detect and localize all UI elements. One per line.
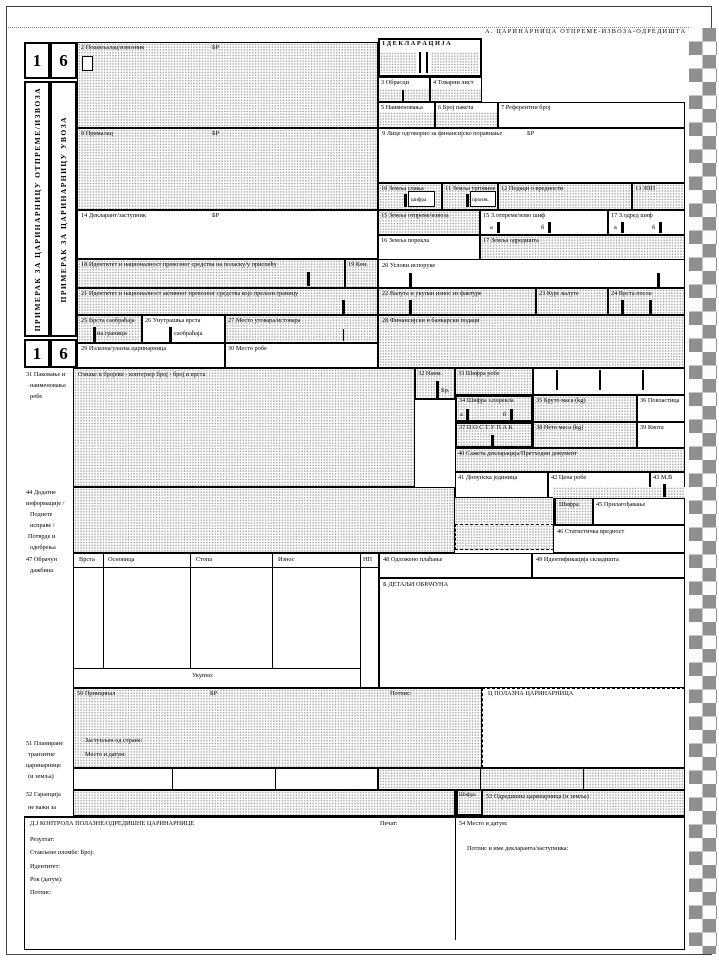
- box-20-label: 20 Услови испоруке: [382, 262, 435, 269]
- box-51-transit-cells-left: [73, 768, 378, 790]
- box-50-represented-label: Заступљен од стране:: [85, 737, 142, 744]
- transit-cell-divider: [480, 768, 481, 790]
- box-51-transit-cells-right: [378, 768, 685, 790]
- box-2-id-square: [82, 56, 93, 71]
- box-44-label-line2: информације /: [26, 500, 64, 507]
- box-3-label: 3 Обрасци: [381, 79, 409, 86]
- box-49-label: 49 Идентификација складишта: [536, 556, 619, 563]
- box-4-label: 4 Товарни лист: [433, 79, 473, 86]
- box-13-label: 13 ЗПП: [635, 185, 655, 192]
- box-41-label: 41 Допунска јединица: [458, 474, 517, 481]
- copy-1-vertical-label: ПРИМЕРАК ЗА ЦАРИНАРНИЦУ ОТПРЕМЕ/ИЗВОЗА: [24, 81, 50, 337]
- box-47-col-rate: Стопа: [196, 556, 212, 563]
- box-25-label: 25 Врста саобраћаја: [81, 317, 135, 324]
- box-d-identity-label: Идентитет:: [30, 863, 60, 870]
- table-column-line: [272, 553, 273, 668]
- field-tick: [621, 300, 624, 314]
- box-44-label-line3: Поднете: [30, 511, 52, 518]
- box-8-label: 8 Прималац: [81, 130, 113, 137]
- field-tick: [497, 222, 500, 233]
- box-25-sublabel: на граници: [97, 330, 127, 337]
- box-37-label: 37 П О С Т У П А К: [459, 424, 513, 431]
- box-14-label: 14 Декларант/заступник: [81, 212, 146, 219]
- box-24-label: 24 Врста посла: [611, 290, 652, 297]
- box-23-label: 23 Курс валуте: [539, 290, 579, 297]
- box-52-guarantee: [73, 790, 455, 816]
- office-of-dispatch-header: А. ЦАРИНАРНИЦА ОТПРЕМЕ-ИЗВОЗА-ОДРЕДИШТА: [485, 28, 686, 35]
- box-18-label: 18 Идентитет и националност превозног ср…: [81, 261, 277, 268]
- box-35-label: 35 Бруто маса (kg): [536, 397, 586, 404]
- box-51-label-line1: 51 Планиране: [26, 740, 63, 747]
- field-tick: [402, 90, 404, 101]
- box-d-signature-label: Потпис:: [30, 889, 52, 896]
- box-22-label: 22 Валута и укупан износ из фактуре: [382, 290, 482, 297]
- box-b-accounting-details: [379, 578, 685, 688]
- box-7-label: 7 Референтни број: [501, 104, 551, 111]
- box-26-sublabel: саобраћаја: [174, 330, 202, 337]
- field-tick: [659, 222, 662, 233]
- box-44-extension: [455, 498, 553, 524]
- box-d-title: Д.Ј КОНТРОЛА ПОЛАЗНЕ/ОДРЕДИШНЕ ЦАРИНАРНИ…: [30, 820, 194, 827]
- field-tick: [436, 381, 439, 399]
- box-51-label-line3: царинарнице: [26, 762, 61, 769]
- box-46-label: 46 Статистичка вредност: [557, 528, 624, 535]
- box-14-br: БР: [212, 212, 219, 219]
- box-44-dashed-subfield: [455, 524, 554, 550]
- field-tick: [621, 222, 624, 233]
- copy-6-vertical-label: ПРИМЕРАК ЗА ЦАРИНАРНИЦУ УВОЗА: [50, 81, 77, 337]
- box-48-label: 48 Одложено плаћање: [383, 556, 442, 563]
- box-10-sublabel: шифра: [411, 198, 426, 204]
- box-6-label: 6 Број пакета: [438, 104, 473, 111]
- box-45-code-label: Шифра: [559, 501, 579, 508]
- box-44-label-line1: 44 Додатне: [26, 489, 56, 496]
- box-47-label-line1: 47 Обрачун: [26, 556, 57, 563]
- box-47-label-line2: дажбина: [30, 567, 53, 574]
- box-31-packages-description: [73, 368, 415, 487]
- box-15-label: 15 Земља отпреме/извоза: [381, 212, 449, 219]
- box-5-label: 5 Наименовања: [381, 104, 423, 111]
- box-31-label-line2: наименовање: [30, 382, 66, 389]
- field-tick: [307, 272, 310, 286]
- box-17-label: 17 Земља одредишта: [483, 237, 539, 244]
- box-54-declarant-signature-label: Потпис и име декларанта/заступника:: [467, 845, 568, 852]
- transit-cell-divider: [172, 768, 173, 790]
- box-50-principal: [73, 688, 482, 768]
- box-19-label: 19 Кон.: [348, 261, 368, 268]
- field-tick: [466, 194, 469, 207]
- box-47-col-amount: Износ: [278, 556, 295, 563]
- copy-number-1-top: 1: [24, 42, 50, 79]
- box-52-label-line2: не важи за: [28, 804, 56, 811]
- field-tick: [491, 435, 494, 447]
- box-d-divider: [455, 816, 456, 940]
- box-38-label: 38 Нето маса (kg): [536, 424, 583, 431]
- box-50-place-date-label: Место и датум:: [85, 751, 126, 758]
- box-1-subfield-right: [431, 52, 479, 73]
- box-8-consignee: [77, 128, 378, 210]
- table-column-line: [103, 553, 104, 668]
- box-30-label: 30 Место робе: [228, 345, 267, 352]
- box-26-label: 26 Унутрашња врста: [145, 317, 200, 324]
- field-tick: [426, 52, 428, 73]
- copy-number-6-top: 6: [50, 42, 77, 79]
- box-d-result-label: Резултат:: [30, 836, 55, 843]
- field-tick: [642, 370, 644, 390]
- box-28-label: 28 Финансијски и банкарски подаци: [382, 317, 480, 324]
- box-27-label: 27 Место утовара/истовара: [228, 317, 300, 324]
- field-tick: [342, 300, 345, 314]
- box-44-label-line4: исправе /: [30, 522, 55, 529]
- transit-cell-divider: [275, 768, 276, 790]
- box-12-label: 12 Подаци о вредности: [501, 185, 563, 192]
- box-17a-sub-b: б: [652, 224, 655, 231]
- box-47-col-payment-method: НП: [363, 556, 372, 563]
- transit-cell-divider: [583, 768, 584, 790]
- field-tick: [649, 300, 652, 314]
- field-tick: [657, 273, 660, 287]
- field-tick: [409, 273, 412, 287]
- box-3-field: [379, 89, 429, 101]
- box-9-br: БР: [527, 130, 534, 137]
- box-15a-sub-b: б: [541, 224, 544, 231]
- box-45-label: 45 Прилагођавање: [596, 501, 645, 508]
- box-34-sub-a: а: [460, 411, 463, 418]
- box-17a-sub-a: а: [614, 224, 617, 231]
- box-53-label: 53 Одредишна царинарница (и земља): [486, 793, 589, 800]
- box-1-subfield-left: [380, 52, 417, 73]
- customs-declaration-form: А. ЦАРИНАРНИЦА ОТПРЕМЕ-ИЗВОЗА-ОДРЕДИШТА …: [0, 0, 719, 962]
- box-21-label: 21 Идентитет и националност активног пре…: [81, 290, 298, 297]
- box-11-label: 11 Земља трговине: [445, 185, 496, 192]
- field-tick: [510, 409, 513, 420]
- box-31-marks-numbers-label: Ознаке и бројеви - контејнер број - број…: [78, 371, 205, 378]
- copy-number-6-bottom: 6: [50, 339, 77, 368]
- field-tick: [343, 329, 344, 341]
- box-47-col-base: Основица: [108, 556, 134, 563]
- box-52-code-label: Шифра: [459, 793, 476, 799]
- box-50-label: 50 Принципал: [77, 690, 115, 697]
- box-32-label: 32 Наим.: [418, 370, 442, 377]
- box-5-field: [379, 112, 434, 127]
- field-tick: [404, 194, 407, 207]
- box-d-deadline-label: Рок (датум):: [30, 876, 63, 883]
- box-9-label: 9 Лице одговорно за финансијско поравнањ…: [382, 130, 502, 137]
- box-50-signature-label: Потпис:: [390, 690, 412, 697]
- box-36-label: 36 Повластица: [640, 397, 679, 404]
- table-column-line: [190, 553, 191, 668]
- box-10-label: 10 Земља слања: [381, 185, 424, 192]
- box-d-seal-label: Печат:: [380, 820, 398, 827]
- box-43-label: 43 М.В: [653, 474, 672, 481]
- field-tick: [419, 52, 421, 73]
- box-51-label-line4: (и земља): [28, 773, 54, 780]
- box-32-sublabel: Бр.: [441, 387, 449, 394]
- table-header-line: [73, 567, 379, 568]
- box-11-sublabel: произв.: [472, 198, 489, 204]
- box-4-field: [431, 89, 481, 101]
- box-42-label: 42 Цена робе: [551, 474, 586, 481]
- box-d-seals-label: Стављене пломбе: Број:: [30, 849, 94, 856]
- box-47-col-type: Врста: [79, 556, 95, 563]
- box-29-label: 29 Излазна/улазна царинарница: [81, 345, 166, 352]
- box-6-field: [436, 112, 497, 127]
- box-15a-sub-a: а: [490, 224, 493, 231]
- field-tick: [663, 484, 666, 497]
- field-tick: [466, 409, 469, 420]
- field-tick: [93, 327, 96, 342]
- field-tick: [409, 300, 412, 314]
- box-34-sub-b: б: [503, 411, 506, 418]
- box-51-label-line2: транзитне: [28, 751, 55, 758]
- box-31-label-line3: робе: [30, 393, 42, 400]
- box-44-label-line6: одобрења: [30, 544, 56, 551]
- box-17a-label: 17 З.одред шиф: [611, 212, 653, 219]
- field-tick: [599, 370, 601, 390]
- box-8-br: БР: [212, 130, 219, 137]
- box-c-office-of-departure: [482, 688, 685, 768]
- box-52-label-line1: 52 Гаранција: [26, 791, 61, 798]
- box-40-label: 40 Сажета декларација/Претходни документ: [458, 450, 577, 457]
- box-d-control-section: [24, 816, 685, 950]
- box-47-total-label: Укупно:: [192, 672, 214, 679]
- table-total-line: [73, 668, 361, 669]
- box-31-label-line1: 31 Паковање и: [26, 371, 65, 378]
- box-c-label: Ц ПОЛАЗНА ЦАРИНАРНИЦА: [488, 690, 573, 697]
- field-tick: [169, 327, 172, 342]
- box-50-br: БР: [210, 690, 217, 697]
- box-b-label: Б ДЕТАЉИ ОБРАЧУНА: [383, 581, 448, 588]
- box-2-consignor: [77, 42, 378, 128]
- box-15a-label: 15 З.отпреме/изво шиф: [483, 212, 545, 219]
- box-44-label-line5: Потврде и: [28, 533, 55, 540]
- box-2-label: 2 Пошиљалац/извозник: [81, 44, 144, 51]
- box-16-label: 16 Земља порекла: [381, 237, 429, 244]
- box-33-label: 33 Шифра робе: [458, 370, 499, 377]
- box-2-br: БР: [212, 44, 219, 51]
- box-34-label: 34 Шифра з.порекла: [459, 397, 514, 404]
- box-54-place-date-label: 54 Место и датум:: [459, 820, 508, 827]
- box-1-title: 1 Д Е К Л А Р А Ц И Ј А: [382, 40, 451, 47]
- field-tick: [548, 222, 551, 233]
- box-44-additional-information: [73, 487, 455, 553]
- checker-edge-strip: [689, 28, 717, 954]
- box-39-label: 39 Квота: [640, 424, 664, 431]
- field-tick: [556, 370, 558, 390]
- copy-number-1-bottom: 1: [24, 339, 50, 368]
